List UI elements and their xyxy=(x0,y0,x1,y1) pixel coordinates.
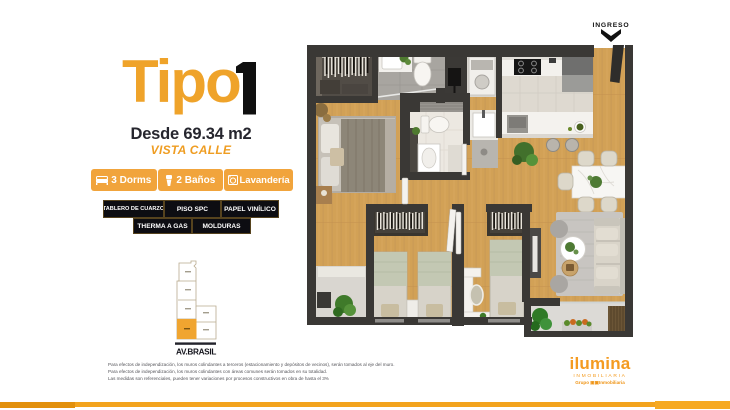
svg-text:INGRESO: INGRESO xyxy=(593,22,630,29)
